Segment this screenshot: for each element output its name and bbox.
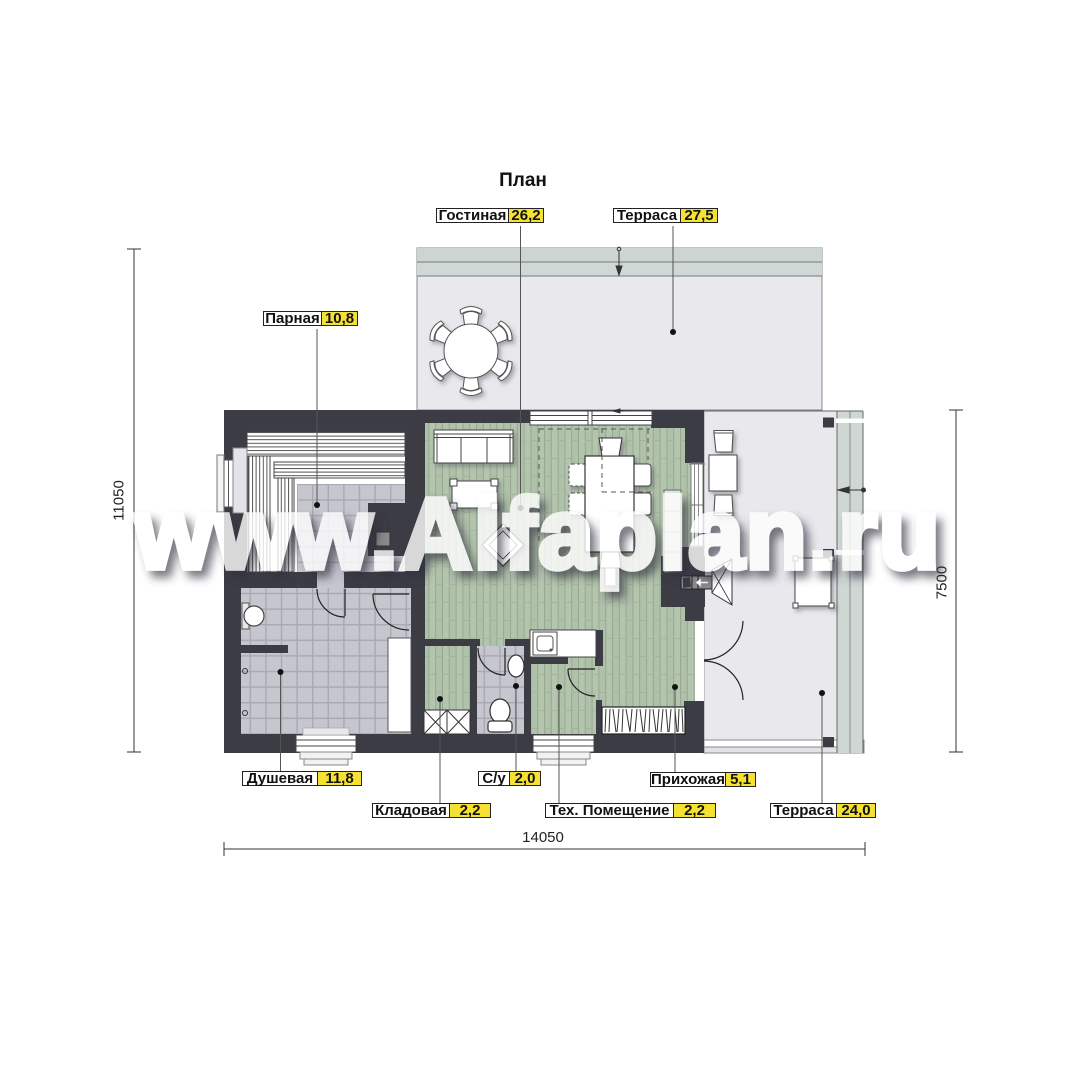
svg-text:www.Alfaplan.ru: www.Alfaplan.ru [134, 478, 942, 590]
